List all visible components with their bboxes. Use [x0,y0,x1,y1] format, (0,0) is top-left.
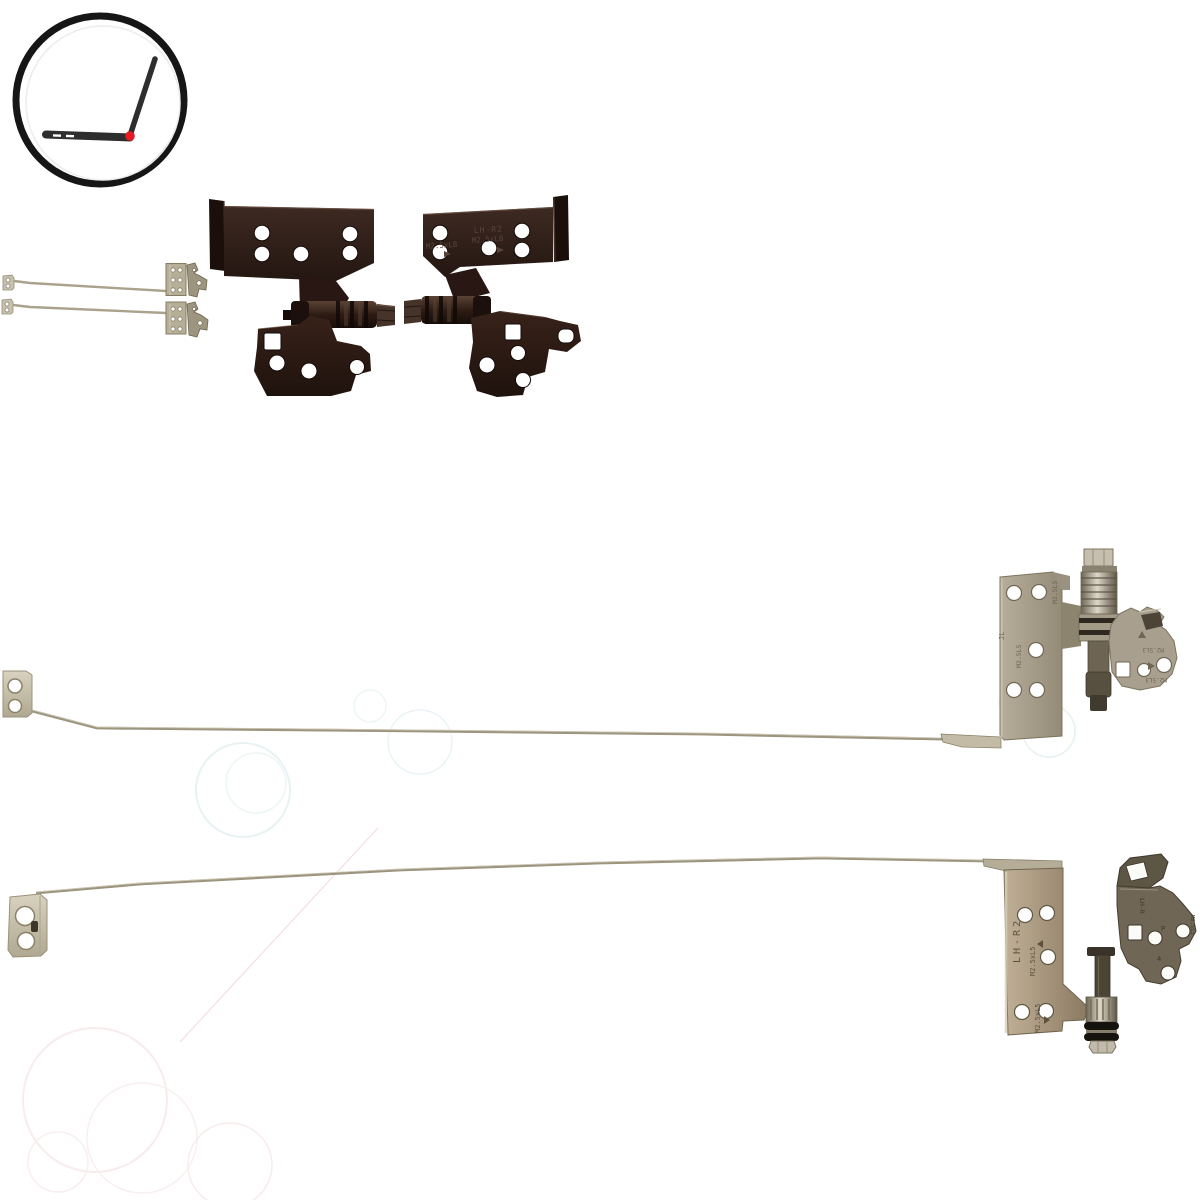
product-photo: LH-R2 M2.5xL8 M2.5xL8 [0,0,1200,1200]
hook-slot [558,329,574,343]
screw-hole [9,700,22,713]
barrel-shaft [1095,955,1110,999]
barrel-knuckle [1086,672,1111,697]
screw-hole [1176,924,1190,938]
stamp-screw: M2.5xL5 [1029,946,1037,976]
mini-hinge-plate [166,302,186,334]
rail-wire [32,711,968,741]
stamp-model: LH-R2 [1012,918,1023,963]
dark-side-bracket: LH-R P M2.5L3 4 [1117,854,1196,984]
screw-hole [197,281,201,285]
screw-hole [18,933,35,950]
barrel-hex-nut [1084,549,1113,566]
display-hinge-right: LH-R2 M2.5xL8 M2.5xL8 [404,195,581,397]
screw-hole [8,679,22,693]
screw-hole [5,308,9,312]
square-hole [264,333,281,350]
rail-wire-highlight [32,710,940,738]
hinge-rail-assembly-top: M2.5L5 M2.5L5 JL [3,549,1177,748]
screw-hole [1157,658,1172,673]
rail-wire-highlight [36,857,985,892]
rail-wire [36,858,985,893]
square-hole [505,324,521,340]
o-ring [1084,1022,1119,1030]
stamp-screw: M2.5xL5 [1034,1003,1042,1033]
screw-hole [1161,966,1175,980]
screw-hole [5,302,9,306]
stamp-screw: M2.5L3 [1145,676,1167,683]
stamp-mark: P [1161,925,1165,933]
rail-foot [941,734,1001,748]
mini-hinge-rail-a [3,263,207,297]
screw-hole [193,269,196,272]
barrel-hex-nut [1089,1041,1116,1053]
screw-hole [6,278,10,282]
barrel-washer [1082,566,1117,572]
screw-hole [350,360,365,375]
square-hole [1128,925,1142,940]
o-ring [1084,1033,1119,1041]
hinge-barrel-vertical [1084,947,1119,1053]
hinge-rail-assembly-bottom: LH-R2 M2.5xL5 M2.5xL5 LH-R P M2.5L3 4 [8,854,1196,1053]
hinge-dot-icon [125,131,135,141]
screw-hole [1148,931,1162,945]
screw-hole [511,346,526,361]
stamp-model: LH-R [1138,898,1146,914]
laptop-hinge-logo [16,16,184,184]
hinge-flange [209,199,225,271]
stamp-mark: JL [998,632,1006,640]
mini-hinge-arm [187,263,207,297]
barrel-hex-nut [377,304,395,327]
square-hole [1116,662,1130,677]
barrel-pin [283,310,292,320]
mini-hinge-plate [166,264,186,296]
plate-arm [1062,602,1081,649]
mini-hinge-rail-b [2,299,208,337]
photo-canvas: LH-R2 M2.5xL8 M2.5xL8 [0,0,1200,1200]
screw-hole [269,355,285,371]
screw-hole [6,284,10,288]
screw-hole [198,321,202,325]
side-bracket: M2.5L3 M2.5L3 [1109,607,1177,690]
stamp-screw: M2.5L3 [1142,646,1164,653]
barrel-hex-nut [404,299,421,324]
o-ring-gap [1086,1030,1117,1033]
screw-hole [516,373,531,388]
tab-pin [31,921,38,932]
stamp-mark: 4 [1157,955,1161,963]
background-watermark [23,689,1075,1200]
stamp-screw: M2.5L5 [1051,580,1059,604]
mini-rail-wire [14,281,166,291]
hinge-plate [224,206,374,281]
screw-hole [301,363,317,379]
stamp-screw: M2.5L5 [1015,644,1023,668]
barrel-tip [1090,695,1107,711]
logo-ring [16,16,184,184]
screw-hole [193,308,196,311]
stamp-screw: M2.5L3 [1189,915,1195,935]
mini-hinge-arm [187,302,208,337]
display-hinge-left [209,199,395,396]
barrel-shaft [1088,641,1109,674]
mini-rail-wire [13,305,166,313]
screw-hole [479,357,495,373]
